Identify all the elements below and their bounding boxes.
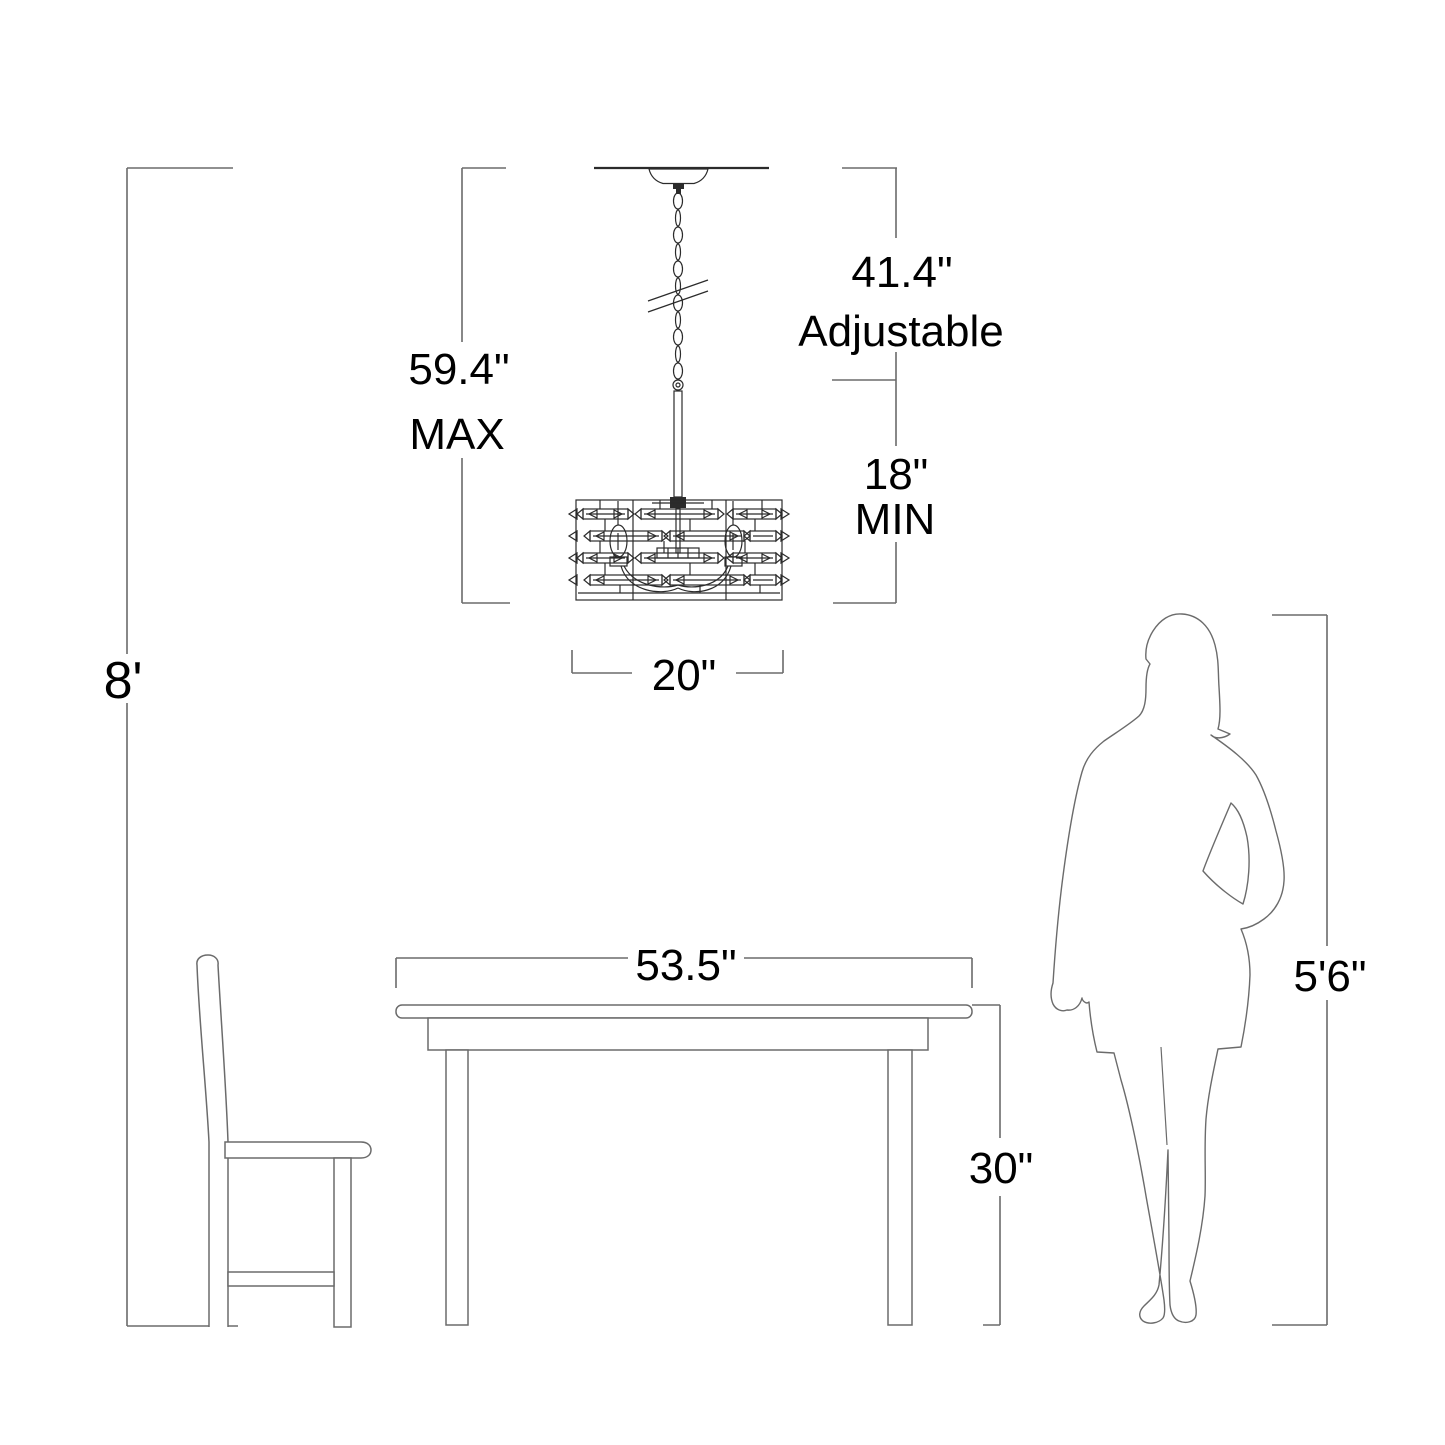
chandelier <box>569 169 789 600</box>
chair-front-leg <box>334 1158 351 1327</box>
chain-break-mark <box>648 280 708 301</box>
chair <box>197 955 371 1327</box>
canopy <box>649 169 708 184</box>
down-rod <box>674 391 682 497</box>
dimension-person-height: 5'6" <box>1272 615 1366 1325</box>
crystal-bar-row <box>569 575 789 585</box>
fixture-width-label: 20" <box>652 651 717 700</box>
chain-connector-ball <box>673 380 683 390</box>
table-leg <box>446 1050 468 1325</box>
table-apron <box>428 1018 928 1050</box>
hanging-chain <box>648 193 708 379</box>
person-height-label: 5'6" <box>1294 952 1367 1001</box>
table-leg <box>888 1050 912 1325</box>
table-height-label: 30" <box>969 1144 1034 1193</box>
dimension-diagram-page: 8' 59.4" MAX 41.4" Adjustable 18" MIN 20… <box>0 0 1445 1445</box>
candle-arm <box>678 566 731 592</box>
dimension-table-height: 30" <box>969 1005 1034 1325</box>
min-drop-value-label: 18" <box>864 450 929 499</box>
chair-seat <box>225 1142 371 1158</box>
min-drop-qualifier-label: MIN <box>855 495 936 544</box>
table-width-label: 53.5" <box>635 941 736 990</box>
dimension-fixture-width: 20" <box>572 650 783 700</box>
canopy-finial <box>673 184 684 189</box>
dimension-adjustable-min: 41.4" Adjustable 18" MIN <box>798 168 1003 603</box>
dining-table <box>396 1005 972 1325</box>
max-drop-qualifier-label: MAX <box>409 410 504 459</box>
crystal-bar-row <box>569 531 789 541</box>
adjustable-value-label: 41.4" <box>851 248 952 297</box>
crystal-bar-row <box>569 509 789 519</box>
table-top <box>396 1005 972 1018</box>
dimension-table-width: 53.5" <box>396 941 972 990</box>
crystal-drum-shade <box>569 500 789 600</box>
ceiling-height-label: 8' <box>104 652 143 710</box>
dimension-diagram: 8' 59.4" MAX 41.4" Adjustable 18" MIN 20… <box>0 0 1445 1445</box>
chair-stretcher <box>228 1272 334 1286</box>
adjustable-qualifier-label: Adjustable <box>798 307 1003 356</box>
dimension-max-drop: 59.4" MAX <box>408 168 510 603</box>
woman-silhouette <box>1051 614 1284 1323</box>
chair-back-post <box>197 955 228 1327</box>
woman-outline <box>1051 614 1284 1323</box>
max-drop-value-label: 59.4" <box>408 345 509 394</box>
